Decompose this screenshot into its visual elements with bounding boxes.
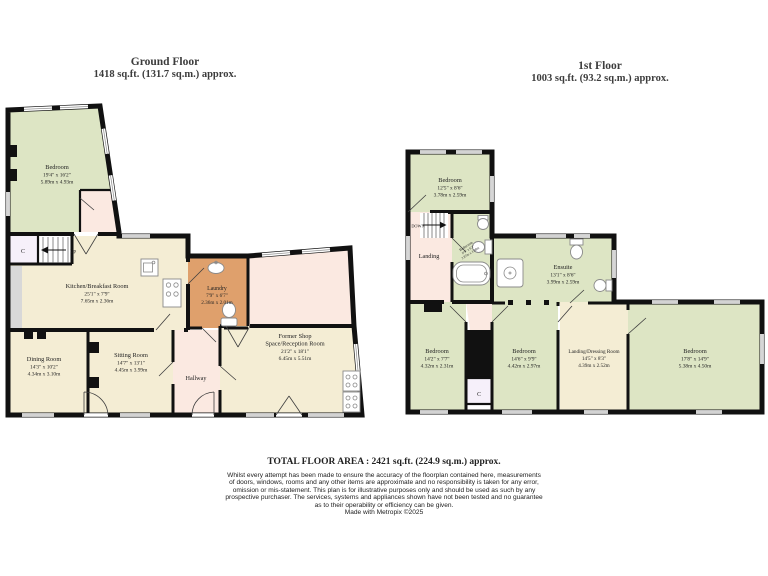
ensuite-toilet: [571, 245, 583, 259]
shop-appliance-2: [343, 392, 360, 412]
bedroom-mid-label: Bedroom: [512, 348, 536, 355]
bathroom-toilet-tank: [485, 240, 492, 254]
svg-text:7'9" x 6'7": 7'9" x 6'7": [206, 293, 228, 299]
laundry-toilet-tank: [221, 318, 237, 326]
bedroom-top-label: Bedroom: [438, 177, 462, 184]
stairs-up-label: Up: [70, 250, 77, 255]
svg-text:5.38m x 4.50m: 5.38m x 4.50m: [679, 364, 712, 370]
ensuite-toilet-tank: [570, 239, 583, 245]
ground-floor-plan: Bedroom 19'4" x 16'2" 5.89m x 4.93m Kitc…: [8, 106, 362, 415]
kitchen-label: Kitchen/Breakfast Room: [66, 283, 129, 290]
shop-label: Former Shop: [278, 333, 311, 340]
room-ground-hallway: [173, 330, 220, 415]
metropix-credit: Made with Metropix ©2025: [0, 509, 768, 516]
bedroom-left-label: Bedroom: [425, 348, 449, 355]
svg-text:25'1" x 7'9": 25'1" x 7'9": [84, 292, 109, 298]
svg-text:Space/Reception Room: Space/Reception Room: [265, 341, 324, 348]
svg-text:2.36m x 2.01m: 2.36m x 2.01m: [201, 300, 232, 306]
laundry-label: Laundry: [207, 286, 227, 292]
svg-text:14'2" x 7'7": 14'2" x 7'7": [424, 357, 449, 363]
svg-text:19'4" x 16'2": 19'4" x 16'2": [43, 173, 71, 179]
svg-text:13'1" x 8'6": 13'1" x 8'6": [550, 273, 575, 279]
bedroom-right-label: Bedroom: [683, 348, 707, 355]
svg-text:17'8" x 14'9": 17'8" x 14'9": [681, 357, 709, 363]
disclaimer: Whilst every attempt has been made to en…: [0, 472, 768, 516]
svg-text:4.34m x 3.10m: 4.34m x 3.10m: [28, 372, 61, 378]
disclaimer-line: Whilst every attempt has been made to en…: [0, 472, 768, 479]
room-ground-entry: [248, 248, 354, 326]
svg-text:4.32m x 2.31m: 4.32m x 2.31m: [421, 364, 454, 370]
dining-label: Dining Room: [27, 356, 62, 363]
bathroom-sink: [478, 219, 489, 230]
shop-appliance-1: [343, 371, 360, 391]
svg-text:4.45m x 3.99m: 4.45m x 3.99m: [115, 368, 148, 374]
dressing-label: Landing/Dressing Room: [568, 349, 619, 355]
disclaimer-line: as to their operability or efficiency ca…: [0, 502, 768, 509]
hallway-label: Hallway: [186, 375, 208, 382]
disclaimer-line: omission or mis-statement. This plan is …: [0, 487, 768, 494]
svg-text:3.99m x 2.59m: 3.99m x 2.59m: [547, 280, 580, 286]
footer: TOTAL FLOOR AREA : 2421 sq.ft. (224.9 sq…: [0, 456, 768, 516]
svg-text:5.89m x 4.93m: 5.89m x 4.93m: [41, 180, 74, 186]
svg-text:4.39m x 2.52m: 4.39m x 2.52m: [578, 363, 609, 369]
first-chimney: [466, 330, 492, 378]
landing-label: Landing: [419, 253, 440, 260]
svg-text:12'5" x 8'6": 12'5" x 8'6": [437, 186, 462, 192]
first-stair-void: [466, 302, 492, 330]
svg-text:3.78m x 2.59m: 3.78m x 2.59m: [434, 193, 467, 199]
total-floor-area: TOTAL FLOOR AREA : 2421 sq.ft. (224.9 sq…: [0, 456, 768, 468]
disclaimer-line: prospective purchaser. The services, sys…: [0, 494, 768, 501]
disclaimer-line: of doors, windows, rooms and any other i…: [0, 479, 768, 486]
first-floor-plan: Bedroom 12'5" x 8'6" 3.78m x 2.59m Landi…: [408, 152, 762, 412]
ground-bedroom-label: Bedroom: [45, 164, 69, 171]
floorplan-page: Ground Floor 1418 sq.ft. (131.7 sq.m.) a…: [0, 0, 768, 576]
svg-text:4.42m x 2.97m: 4.42m x 2.97m: [508, 364, 541, 370]
svg-text:6.45m x 5.51m: 6.45m x 5.51m: [279, 356, 312, 362]
ground-closet-label: C: [21, 249, 25, 255]
sitting-label: Sitting Room: [114, 352, 148, 359]
svg-text:14'5" x 8'3": 14'5" x 8'3": [582, 356, 606, 362]
ensuite-sink: [594, 280, 606, 292]
ensuite-label: Ensuite: [554, 264, 573, 271]
svg-text:21'2" x 18'1": 21'2" x 18'1": [281, 349, 309, 355]
svg-text:14'7" x 13'1": 14'7" x 13'1": [117, 361, 145, 367]
svg-text:14'3" x 10'2": 14'3" x 10'2": [30, 365, 58, 371]
first-closet-label: C: [477, 392, 481, 398]
svg-text:14'6" x 9'9": 14'6" x 9'9": [511, 357, 536, 363]
stairs-down-label: DOWN: [411, 224, 424, 229]
room-first-closet: [466, 378, 492, 404]
ensuite-shower: [497, 259, 523, 287]
svg-text:7.65m x 2.36m: 7.65m x 2.36m: [81, 299, 114, 305]
ensuite-sink-pedestal: [606, 280, 612, 291]
